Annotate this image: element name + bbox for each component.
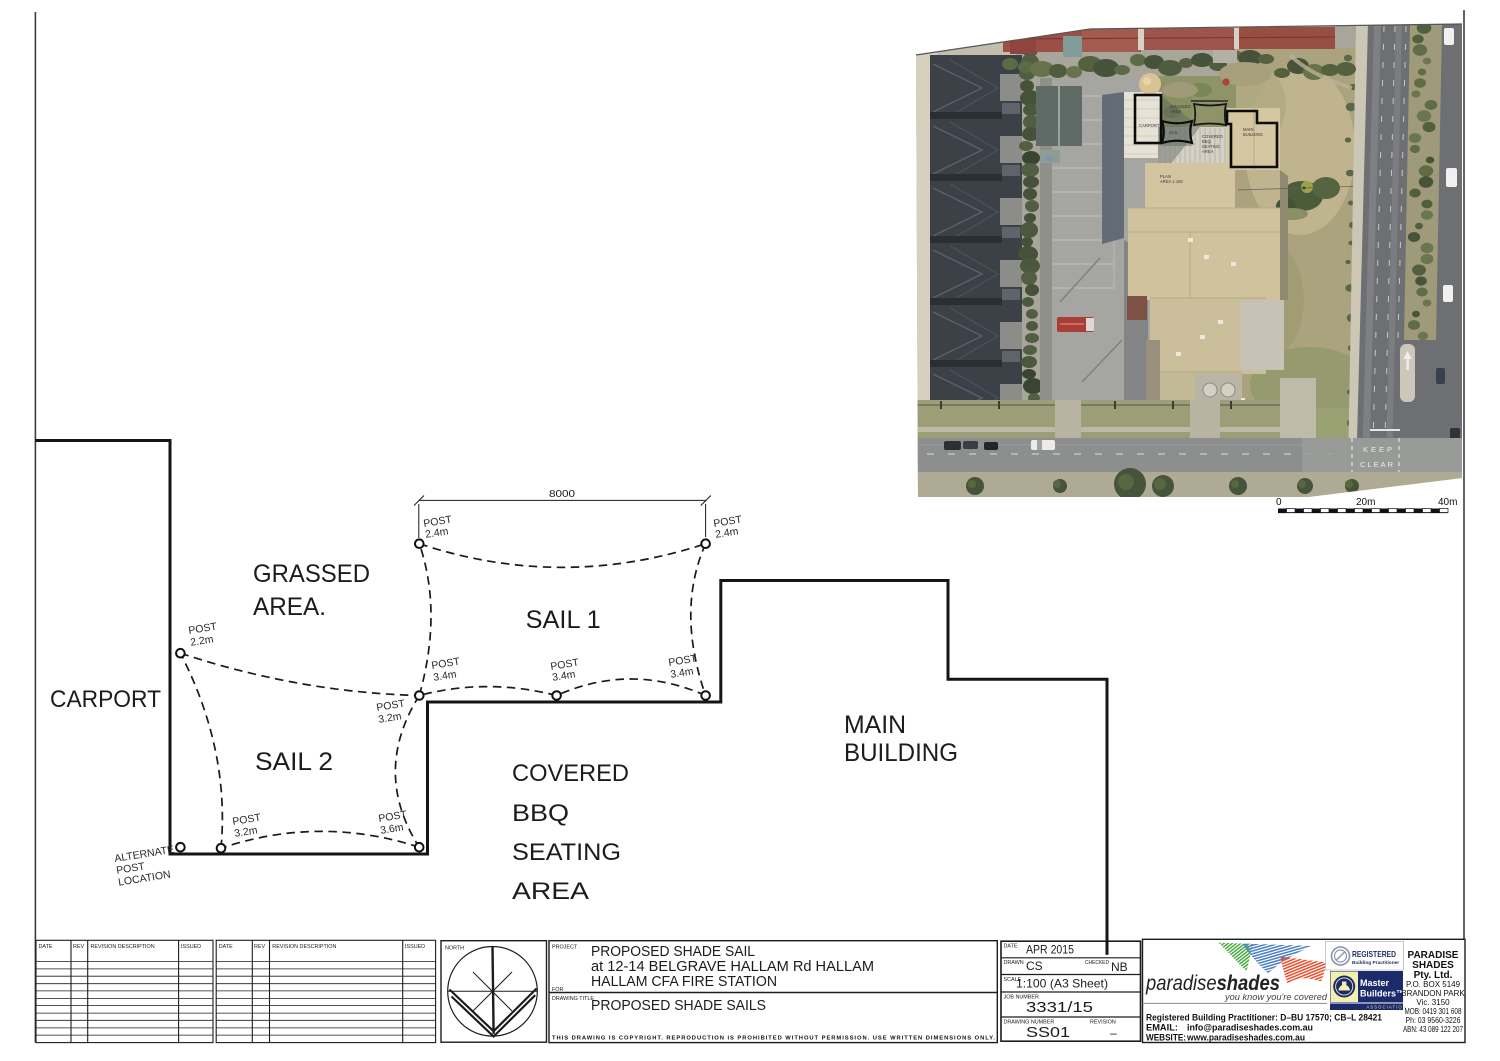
svg-text:2.2m: 2.2m <box>189 633 214 649</box>
svg-text:you know you're covered: you know you're covered <box>1224 992 1328 1003</box>
svg-text:DATE: DATE <box>219 944 233 950</box>
svg-text:SAIL 2: SAIL 2 <box>255 748 333 776</box>
svg-text:info@paradiseshades.com.au: info@paradiseshades.com.au <box>1187 1023 1313 1033</box>
svg-text:8000: 8000 <box>549 488 575 500</box>
svg-text:PROPOSED SHADE SAIL: PROPOSED SHADE SAIL <box>591 944 755 960</box>
svg-text:ISSUED: ISSUED <box>405 944 425 950</box>
svg-text:NORTH: NORTH <box>445 946 464 952</box>
svg-text:DRAWING TITLE: DRAWING TITLE <box>552 996 594 1002</box>
svg-text:2.4m: 2.4m <box>424 525 449 541</box>
svg-text:REV: REV <box>254 944 265 950</box>
svg-text:AREA: AREA <box>512 878 589 905</box>
svg-text:CHECKED: CHECKED <box>1085 960 1109 966</box>
svg-text:AREA: AREA <box>1202 149 1214 154</box>
svg-text:0: 0 <box>1276 497 1282 508</box>
svg-text:ALTERNATE: ALTERNATE <box>114 844 175 865</box>
svg-text:P.O. BOX 5149: P.O. BOX 5149 <box>1406 980 1461 989</box>
svg-text:MOB: 0419 301 608: MOB: 0419 301 608 <box>1405 1007 1462 1016</box>
svg-text:MAIN: MAIN <box>844 711 906 739</box>
svg-text:1:100 (A3 Sheet): 1:100 (A3 Sheet) <box>1016 977 1108 991</box>
svg-text:ASSOCIATION: ASSOCIATION <box>1367 1005 1407 1010</box>
svg-text:BUILDING: BUILDING <box>1243 132 1263 137</box>
svg-text:AREA.: AREA. <box>253 593 326 621</box>
svg-text:DRAWN: DRAWN <box>1004 960 1024 966</box>
svg-text:www.paradiseshades.com.au: www.paradiseshades.com.au <box>1186 1033 1305 1043</box>
svg-text:2.4m: 2.4m <box>714 525 739 541</box>
svg-text:THIS DRAWING IS COPYRIGHT.: THIS DRAWING IS COPYRIGHT. REPRODUCTION … <box>552 1036 995 1042</box>
svg-text:CARPORT: CARPORT <box>50 686 161 713</box>
svg-text:REVISION DESCRIPTION: REVISION DESCRIPTION <box>272 944 336 950</box>
svg-text:REV: REV <box>73 944 84 950</box>
svg-text:NB: NB <box>1111 960 1128 974</box>
svg-text:APR 2015: APR 2015 <box>1026 943 1074 957</box>
svg-text:Ph: 03 9560-3226: Ph: 03 9560-3226 <box>1406 1016 1461 1025</box>
svg-text:3.2m: 3.2m <box>233 824 258 840</box>
svg-text:KEEP: KEEP <box>1363 445 1395 454</box>
svg-text:PROPOSED SHADE SAILS: PROPOSED SHADE SAILS <box>591 998 766 1014</box>
svg-text:REVISION: REVISION <box>1090 1020 1116 1026</box>
svg-text:AREA: AREA <box>1170 109 1182 114</box>
svg-text:SEATING: SEATING <box>512 839 621 866</box>
svg-text:Master: Master <box>1360 978 1390 988</box>
svg-text:DATE: DATE <box>39 944 53 950</box>
svg-text:REGISTERED: REGISTERED <box>1352 950 1396 959</box>
svg-text:BUILDING: BUILDING <box>844 739 958 767</box>
svg-text:20m: 20m <box>1356 497 1375 508</box>
svg-text:HALLAM CFA FIRE STATION: HALLAM CFA FIRE STATION <box>591 974 777 990</box>
svg-text:CARPORT: CARPORT <box>1139 123 1160 128</box>
svg-text:CLEAR: CLEAR <box>1360 460 1395 469</box>
svg-text:3.4m: 3.4m <box>669 665 694 681</box>
svg-text:EMAIL:: EMAIL: <box>1146 1023 1178 1033</box>
svg-text:ABN: 43 089 122 207: ABN: 43 089 122 207 <box>1403 1025 1463 1034</box>
svg-text:40m: 40m <box>1438 497 1457 508</box>
svg-text:Builders™: Builders™ <box>1360 989 1405 999</box>
svg-text:SAIL: SAIL <box>1169 130 1179 135</box>
svg-text:3331/15: 3331/15 <box>1026 999 1093 1016</box>
svg-text:at 12-14 BELGRAVE HALLAM Rd HA: at 12-14 BELGRAVE HALLAM Rd HALLAM <box>591 959 874 975</box>
svg-text:Building Practitioner: Building Practitioner <box>1352 960 1399 966</box>
svg-text:Vic. 3150: Vic. 3150 <box>1416 998 1450 1007</box>
svg-text:PROJECT: PROJECT <box>552 945 578 951</box>
svg-text:FOR: FOR <box>552 987 563 993</box>
svg-text:AREA 1:100: AREA 1:100 <box>1160 179 1183 184</box>
svg-text:3.2m: 3.2m <box>377 710 402 726</box>
svg-text:SAIL 1: SAIL 1 <box>526 606 601 634</box>
svg-text:REVISION DESCRIPTION: REVISION DESCRIPTION <box>91 944 155 950</box>
svg-text:BRANDON PARK: BRANDON PARK <box>1401 989 1465 998</box>
svg-text:–: – <box>1110 1026 1117 1040</box>
svg-text:3.4m: 3.4m <box>551 668 576 684</box>
svg-text:BBQ: BBQ <box>512 800 569 827</box>
svg-text:3.4m: 3.4m <box>432 668 457 684</box>
svg-text:COVERED: COVERED <box>512 760 629 787</box>
svg-text:SS01: SS01 <box>1026 1024 1070 1041</box>
svg-text:WEBSITE:: WEBSITE: <box>1146 1033 1186 1043</box>
svg-text:CS: CS <box>1026 959 1043 973</box>
svg-text:GRASSED: GRASSED <box>253 560 370 588</box>
svg-text:Registered Building Practition: Registered Building Practitioner: D–BU 1… <box>1146 1013 1382 1023</box>
svg-text:ISSUED: ISSUED <box>181 944 201 950</box>
svg-text:DATE: DATE <box>1004 944 1018 950</box>
svg-text:3.6m: 3.6m <box>379 821 404 837</box>
